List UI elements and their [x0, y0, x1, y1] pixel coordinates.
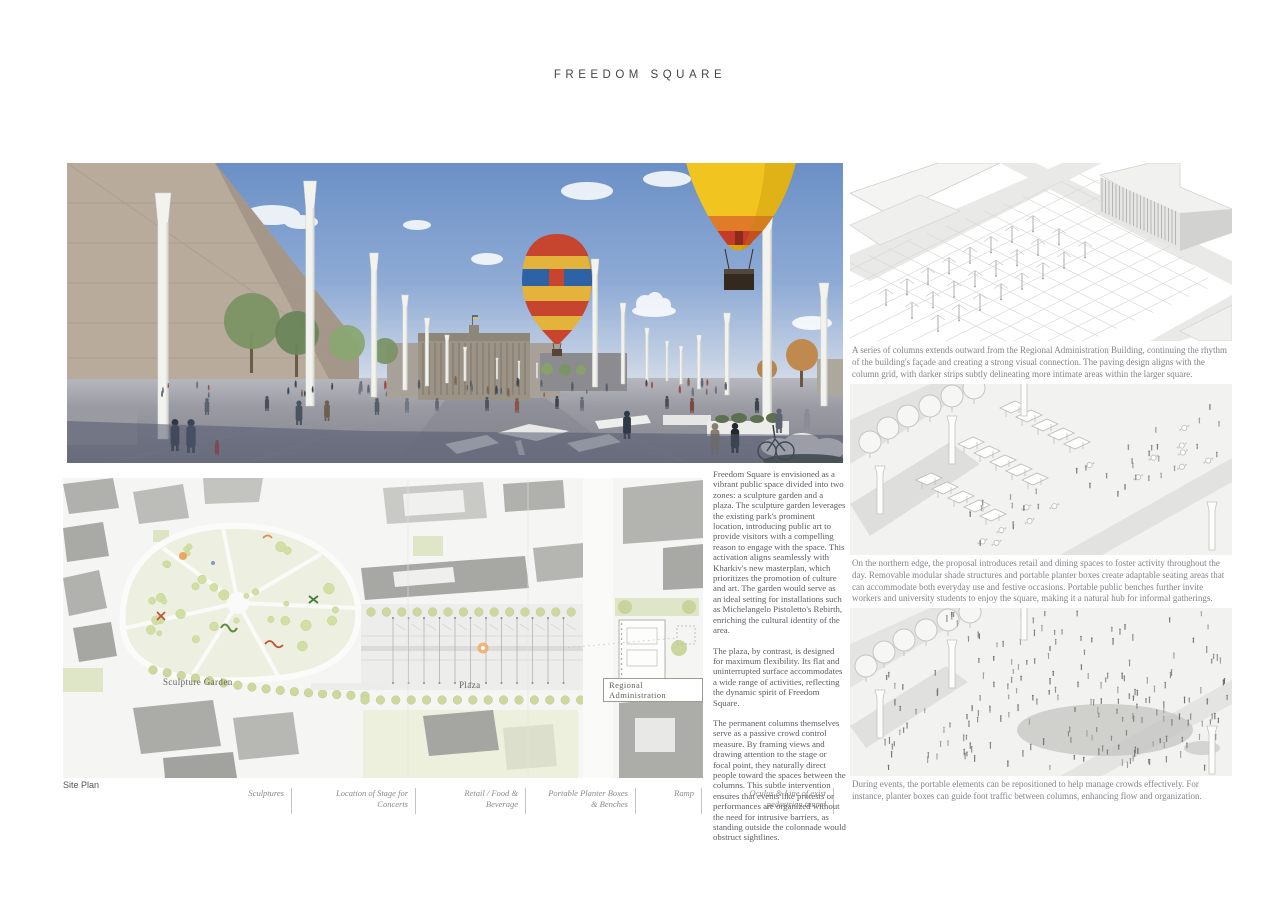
- zone-label-sculpture-garden: Sculpture Garden: [163, 677, 233, 687]
- site-plan: Sculpture Garden Plaza Regional Administ…: [63, 478, 703, 778]
- axon-caption-2: On the northern edge, the proposal intro…: [852, 558, 1232, 605]
- balloon-shadow: [1017, 704, 1193, 756]
- legend-item-retail: Retail / Food & Beverage: [436, 788, 526, 814]
- legend-item-stage: Location of Stage for Concerts: [312, 788, 416, 814]
- axon-caption-1: A series of columns extends outward from…: [852, 345, 1232, 380]
- site-plan-label: Site Plan: [63, 780, 99, 790]
- axonometric-column-grid: [850, 163, 1232, 341]
- zone-label-regional-administration: Regional Administration: [603, 678, 703, 702]
- description-paragraph: The permanent columns themselves serve a…: [713, 718, 846, 843]
- description-column: Freedom Square is envisioned as a vibran…: [713, 469, 846, 853]
- presentation-board: FREEDOM SQUARE: [0, 0, 1280, 905]
- legend-item-ramp: Ramp: [656, 788, 702, 814]
- plaza-perspective-illustration: [67, 163, 843, 463]
- hero-render: [67, 163, 843, 463]
- description-paragraph: The plaza, by contrast, is designed for …: [713, 646, 846, 708]
- page-title: FREEDOM SQUARE: [0, 69, 1280, 81]
- description-paragraph: Freedom Square is envisioned as a vibran…: [713, 469, 846, 636]
- legend-item-planter-boxes: Portable Planter Boxes & Benches: [546, 788, 636, 814]
- zone-label-plaza: Plaza: [459, 680, 481, 690]
- axonometric-retail-dining: [850, 384, 1232, 555]
- axon-caption-3: During events, the portable elements can…: [852, 779, 1232, 803]
- axonometric-event-crowds: [850, 608, 1232, 776]
- site-plan-drawing: [63, 478, 703, 778]
- sculpture-garden-park: [123, 526, 359, 681]
- axonometric-drawing-2: [850, 384, 1232, 555]
- axonometric-drawing-1: [850, 163, 1232, 341]
- axonometric-drawing-3: [850, 608, 1232, 776]
- legend-item-sculptures: Sculptures: [232, 788, 292, 814]
